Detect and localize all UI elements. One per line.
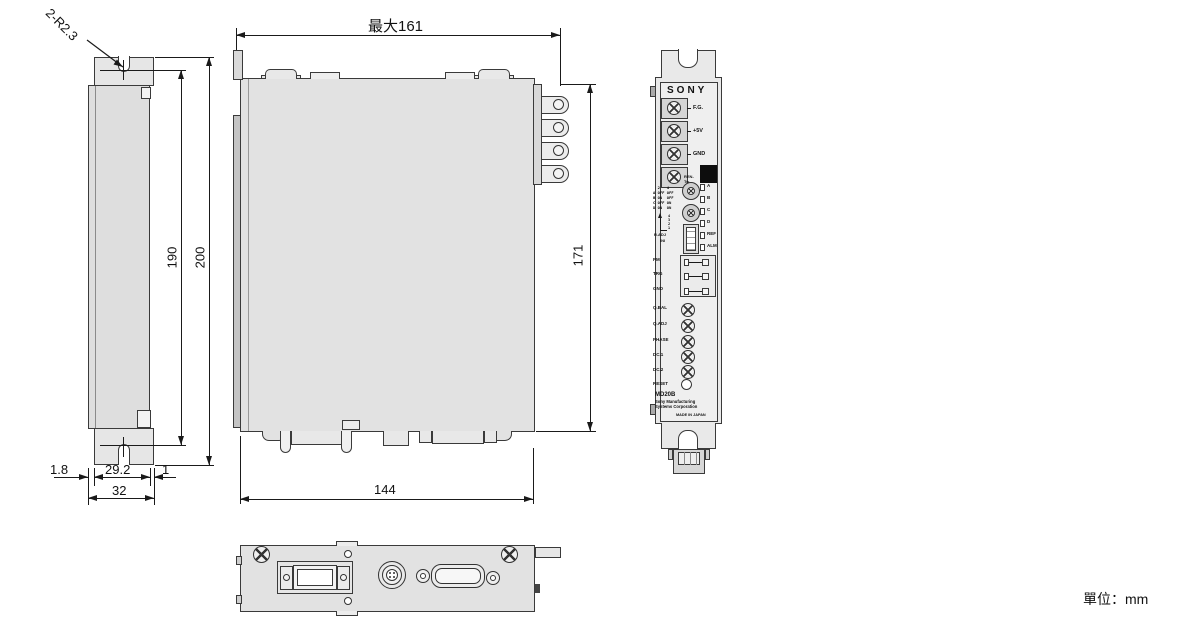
arrow-1 xyxy=(154,474,163,480)
adjuster-screw-dc1 xyxy=(681,350,695,364)
main-inner-tab xyxy=(342,420,360,430)
terminal-screw-3-head xyxy=(553,145,564,156)
led-b xyxy=(700,196,705,203)
arrow-161-r xyxy=(551,32,560,38)
led-label-ref: REF xyxy=(707,232,716,237)
arrow-200-down xyxy=(206,456,212,465)
check-pin-gnd-stem xyxy=(689,291,703,292)
panel-terminal-1-screw xyxy=(667,101,681,115)
dsub-edge xyxy=(432,431,484,444)
round-connector-pin-2 xyxy=(393,572,395,574)
led-d xyxy=(700,220,705,227)
led-alm xyxy=(700,244,705,251)
dim-label-29-2: 29.2 xyxy=(103,462,132,477)
panel-connector-rib-2 xyxy=(690,452,691,465)
ext-161-right xyxy=(560,28,561,86)
check-pin-pm-stem xyxy=(689,262,703,263)
bottom-left-notch-1 xyxy=(236,556,242,565)
dim-label-171: 171 xyxy=(571,240,586,272)
adjuster-screw-dc2 xyxy=(681,365,695,379)
arrow-190-up xyxy=(178,70,184,79)
latch-pin-right xyxy=(341,431,352,453)
dim-label-corner-radius: 2-R2.3 xyxy=(41,4,82,45)
rotary-diagram-line-h xyxy=(660,230,667,231)
panel-connector-wing-r xyxy=(705,449,710,460)
adjuster-label-qbal: Q.BAL xyxy=(653,306,667,311)
led-label-d: D xyxy=(707,220,710,225)
adjuster-label-qadj: Q.ADJ xyxy=(653,322,667,327)
dsub-bracket-right xyxy=(484,431,497,443)
arrow-1-8 xyxy=(79,474,88,480)
bottom-hole-bottom xyxy=(344,597,352,605)
panel-terminal-2-screw xyxy=(667,124,681,138)
panel-terminal-3-screw xyxy=(667,147,681,161)
dip-switch-tick-1 xyxy=(687,231,695,232)
reset-label: RESET xyxy=(653,382,668,387)
main-seam-line xyxy=(248,79,249,431)
dim-line-190 xyxy=(181,70,182,445)
main-tab-2 xyxy=(445,72,475,79)
led-label-b: B xyxy=(707,196,710,201)
main-clip-1 xyxy=(265,69,297,79)
bottom-screw-right xyxy=(501,546,518,563)
dsub-bracket-left xyxy=(419,431,432,443)
led-label-c: C xyxy=(707,208,710,213)
terminal-screw-1-head xyxy=(553,99,564,110)
adjuster-label-dc2: DC.2 xyxy=(653,368,663,373)
latch-pin-left xyxy=(280,431,291,453)
arrow-144-l xyxy=(240,496,249,502)
arrow-200-up xyxy=(206,57,212,66)
side-step-top xyxy=(141,87,151,99)
bottom-hole-top xyxy=(344,550,352,558)
check-pin-label-trg: TRG xyxy=(653,272,663,277)
led-a xyxy=(700,184,705,191)
dim-label-161: 最大161 xyxy=(366,15,425,36)
bottom-left-notch-2 xyxy=(236,595,242,604)
dim-label-1-8: 1.8 xyxy=(48,462,70,477)
arrow-171-up xyxy=(587,84,593,93)
dsub-socket-left-hole xyxy=(420,573,426,579)
adjuster-screw-phase xyxy=(681,335,695,349)
rotary-diagram-label-ini: INI xyxy=(660,239,665,243)
led-label-a: A xyxy=(707,184,710,189)
maker-line-2: Systems Corporation xyxy=(655,405,697,410)
reset-button xyxy=(681,379,692,390)
label-dash-gnd xyxy=(687,154,691,155)
ext-190-bottom xyxy=(100,445,186,446)
square-connector xyxy=(383,431,409,446)
panel-flange-top-notch xyxy=(678,49,698,68)
dim-label-32: 32 xyxy=(110,483,128,498)
arrow-29-2-r xyxy=(141,474,150,480)
bottom-right-rail xyxy=(535,547,561,558)
side-step-bottom xyxy=(137,410,151,428)
ext-190-top xyxy=(100,70,186,71)
notch-centerline-bottom xyxy=(123,437,124,457)
arrow-190-down xyxy=(178,436,184,445)
dim-label-200: 200 xyxy=(193,242,208,274)
round-connector-pin-1 xyxy=(389,572,391,574)
ext-144-left xyxy=(240,436,241,504)
rotary-switch-2-slot xyxy=(687,209,695,217)
main-clip-1-foot-l xyxy=(261,75,266,79)
arrow-29-2-l xyxy=(94,474,103,480)
dim-line-144 xyxy=(240,499,533,500)
adjuster-screw-qadj xyxy=(681,319,695,333)
main-clip-2 xyxy=(478,69,510,79)
dim-line-171 xyxy=(590,84,591,431)
side-seam-line xyxy=(95,86,96,428)
main-tab-1 xyxy=(310,72,340,79)
main-clip-2-foot-r xyxy=(509,75,514,79)
rotary-diagram-label-radj: R.ADJ xyxy=(654,233,666,237)
check-pin-gnd-cap xyxy=(702,288,709,295)
panel-connector-rib-1 xyxy=(684,452,685,465)
arrow-32-l xyxy=(88,495,97,501)
main-clip-2-foot-l xyxy=(474,75,479,79)
panel-connector-rib-3 xyxy=(696,452,697,465)
ext-29-right xyxy=(150,468,151,486)
dim-label-144: 144 xyxy=(372,482,398,497)
rotary-diagram-line-v xyxy=(660,218,661,230)
bottom-tab-top xyxy=(336,541,358,546)
main-clip-1-foot-r xyxy=(296,75,301,79)
check-pin-label-pm: PM xyxy=(653,258,660,263)
rect-connector-screw-l xyxy=(283,574,290,581)
led-ref xyxy=(700,232,705,239)
dim-label-190: 190 xyxy=(165,242,180,274)
main-left-tab xyxy=(233,50,243,80)
arrow-171-down xyxy=(587,422,593,431)
bottom-screw-left xyxy=(253,546,270,563)
label-dash-5v xyxy=(687,131,691,132)
round-connector-face xyxy=(386,569,398,581)
rect-connector-screw-r xyxy=(340,574,347,581)
model-label: MD20B xyxy=(655,392,675,399)
check-pin-pm-cap xyxy=(702,259,709,266)
panel-connector-wing-l xyxy=(668,449,673,460)
check-pin-label-gnd: GND xyxy=(653,287,663,292)
bottom-right-nub xyxy=(535,584,540,593)
terminal-screw-2-head xyxy=(553,122,564,133)
main-left-rail xyxy=(233,115,241,428)
round-connector-pin-3 xyxy=(389,576,391,578)
rotary-switch-1-slot xyxy=(687,187,695,195)
rotary-diagram-numbers: 4 3 2 1 xyxy=(668,214,670,230)
ext-171-bottom xyxy=(536,431,596,432)
label-dash-fg xyxy=(687,108,691,109)
terminal-screw-4-head xyxy=(553,168,564,179)
dsub-shell-inner xyxy=(435,568,481,584)
check-pin-trg-cap xyxy=(702,273,709,280)
side-body xyxy=(88,85,150,429)
rect-connector-opening xyxy=(297,569,333,586)
adjuster-screw-qbal xyxy=(681,303,695,317)
main-body xyxy=(240,78,535,432)
arrow-32-r xyxy=(145,495,154,501)
led-label-alm: ALM xyxy=(707,244,717,249)
terminal-label-gnd: GND xyxy=(693,151,705,157)
dip-switch-tick-2 xyxy=(687,237,695,238)
terminal-label-fg: F.G. xyxy=(693,105,703,111)
unit-label: 單位：mm xyxy=(1083,592,1148,607)
ext-144-right xyxy=(533,448,534,504)
panel-clip-top xyxy=(650,86,656,97)
adjuster-label-phase: PHASE xyxy=(653,338,669,343)
dip-switch-tick-3 xyxy=(687,243,695,244)
arrow-144-r xyxy=(524,496,533,502)
technical-drawing-canvas: 2-R2.3 190 200 1.8 29.2 1 32 xyxy=(0,0,1178,622)
made-in-label: MADE IN JAPAN xyxy=(676,413,706,417)
brand-logo: SONY xyxy=(667,85,707,96)
terminal-label-5v: +5V xyxy=(693,128,703,134)
panel-flange-bottom-notch xyxy=(678,430,698,449)
panel-black-window xyxy=(700,165,717,183)
led-c xyxy=(700,208,705,215)
latch-bar xyxy=(291,431,342,445)
arrow-161-l xyxy=(236,32,245,38)
bottom-tab-bottom xyxy=(336,611,358,616)
adjuster-label-dc1: DC.1 xyxy=(653,353,663,358)
round-connector-pin-4 xyxy=(393,576,395,578)
dim-line-200 xyxy=(209,57,210,465)
dip-switch-tick-4 xyxy=(687,249,695,250)
check-pin-trg-stem xyxy=(689,276,703,277)
dip-table-row-d: D ON ON xyxy=(653,206,671,210)
dsub-socket-right-hole xyxy=(490,575,496,581)
panel-terminal-4-screw xyxy=(667,170,681,184)
